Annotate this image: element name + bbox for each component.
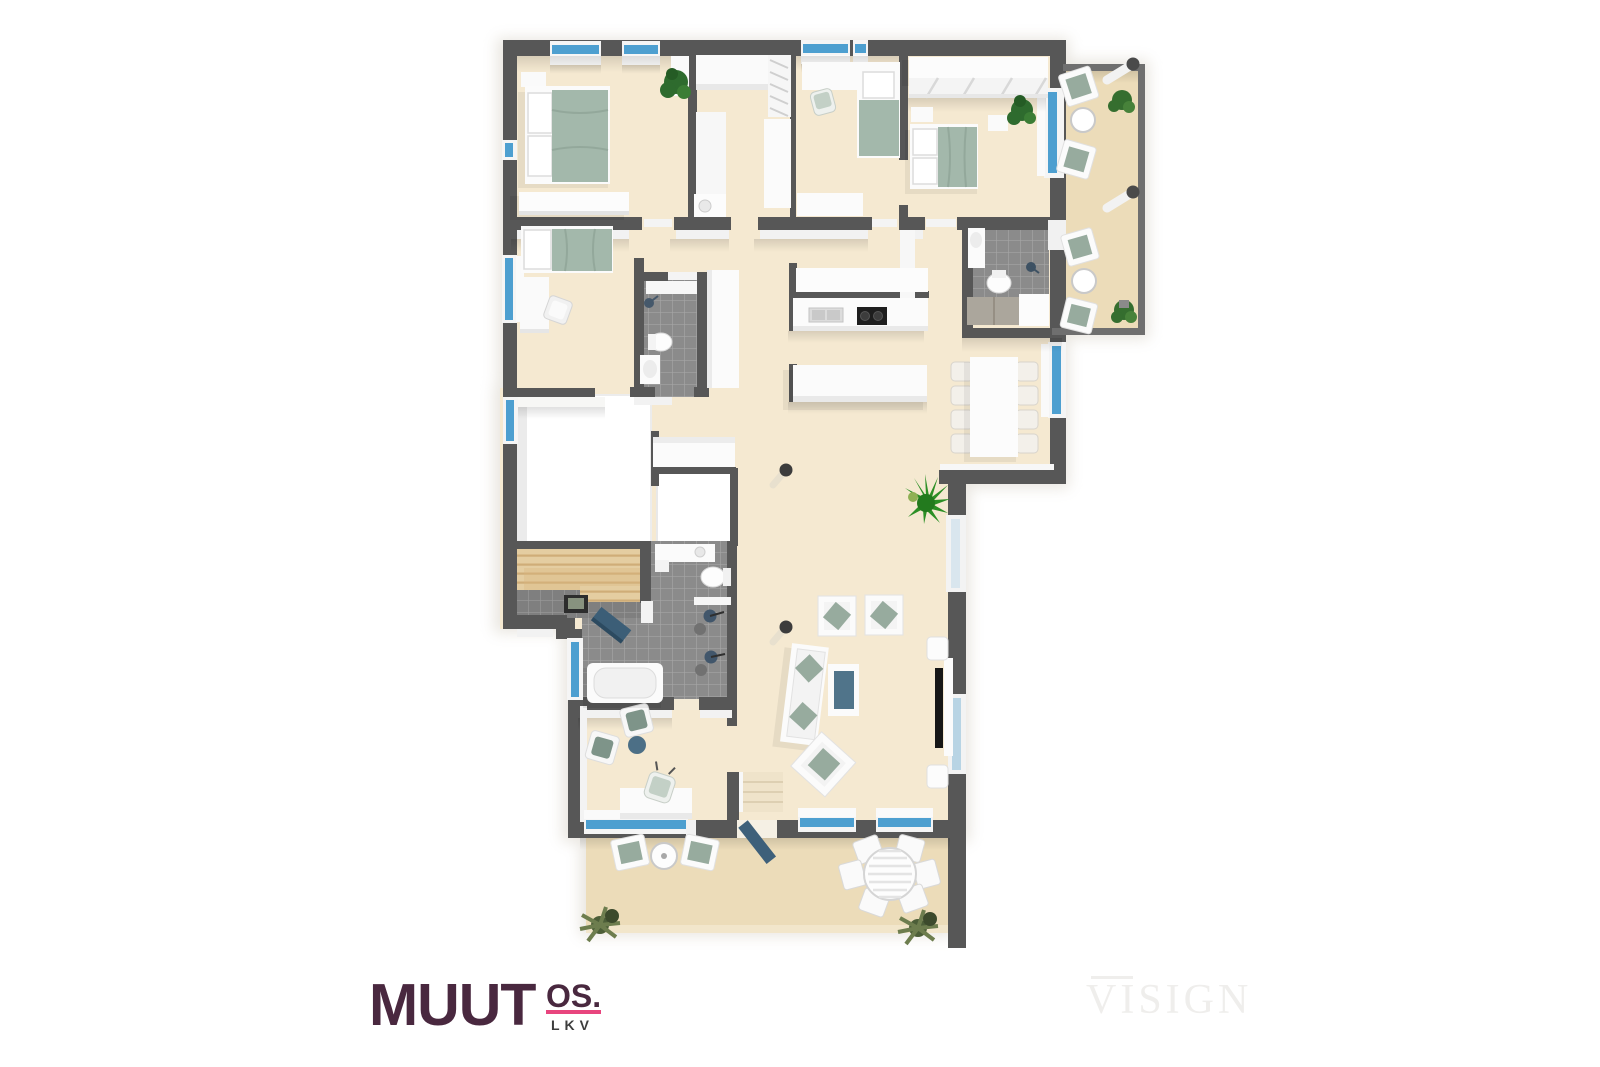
svg-text:VISIGN: VISIGN: [1086, 977, 1252, 1023]
svg-text:LKV: LKV: [551, 1017, 594, 1033]
svg-text:OS.: OS.: [546, 978, 601, 1014]
svg-text:MUUT: MUUT: [369, 972, 536, 1038]
